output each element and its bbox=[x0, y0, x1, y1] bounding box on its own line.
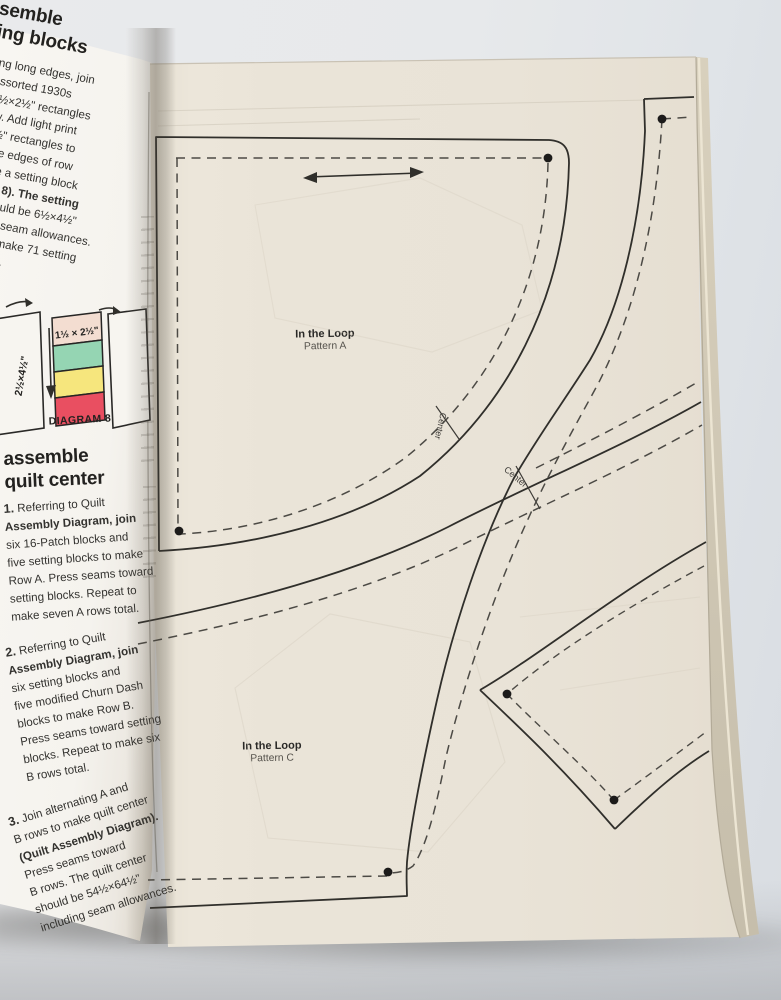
pattern-title: In the Loop bbox=[209, 739, 335, 753]
pattern-c-label: In the Loop Pattern C bbox=[209, 739, 335, 765]
step-2-paragraph: 2. Referring to Quilt Assembly Diagram, … bbox=[4, 616, 196, 787]
pattern-a-label: In the Loop Pattern A bbox=[262, 327, 388, 353]
step-number: 2. bbox=[4, 644, 17, 660]
pattern-subtitle: Pattern C bbox=[209, 752, 335, 765]
pattern-subtitle: Pattern A bbox=[262, 340, 388, 353]
right-magazine-page-pattern-sheet bbox=[140, 48, 760, 958]
step-1-paragraph: 1. Referring to Quilt Assembly Diagram, … bbox=[3, 488, 177, 626]
step-number: 1. bbox=[3, 501, 14, 516]
pattern-title: In the Loop bbox=[262, 327, 388, 341]
section-heading-assemble-quilt-center: assemble quilt center bbox=[3, 441, 175, 494]
photo-open-quilt-magazine: ssemble tting blocks gning long edges, j… bbox=[0, 0, 781, 1000]
